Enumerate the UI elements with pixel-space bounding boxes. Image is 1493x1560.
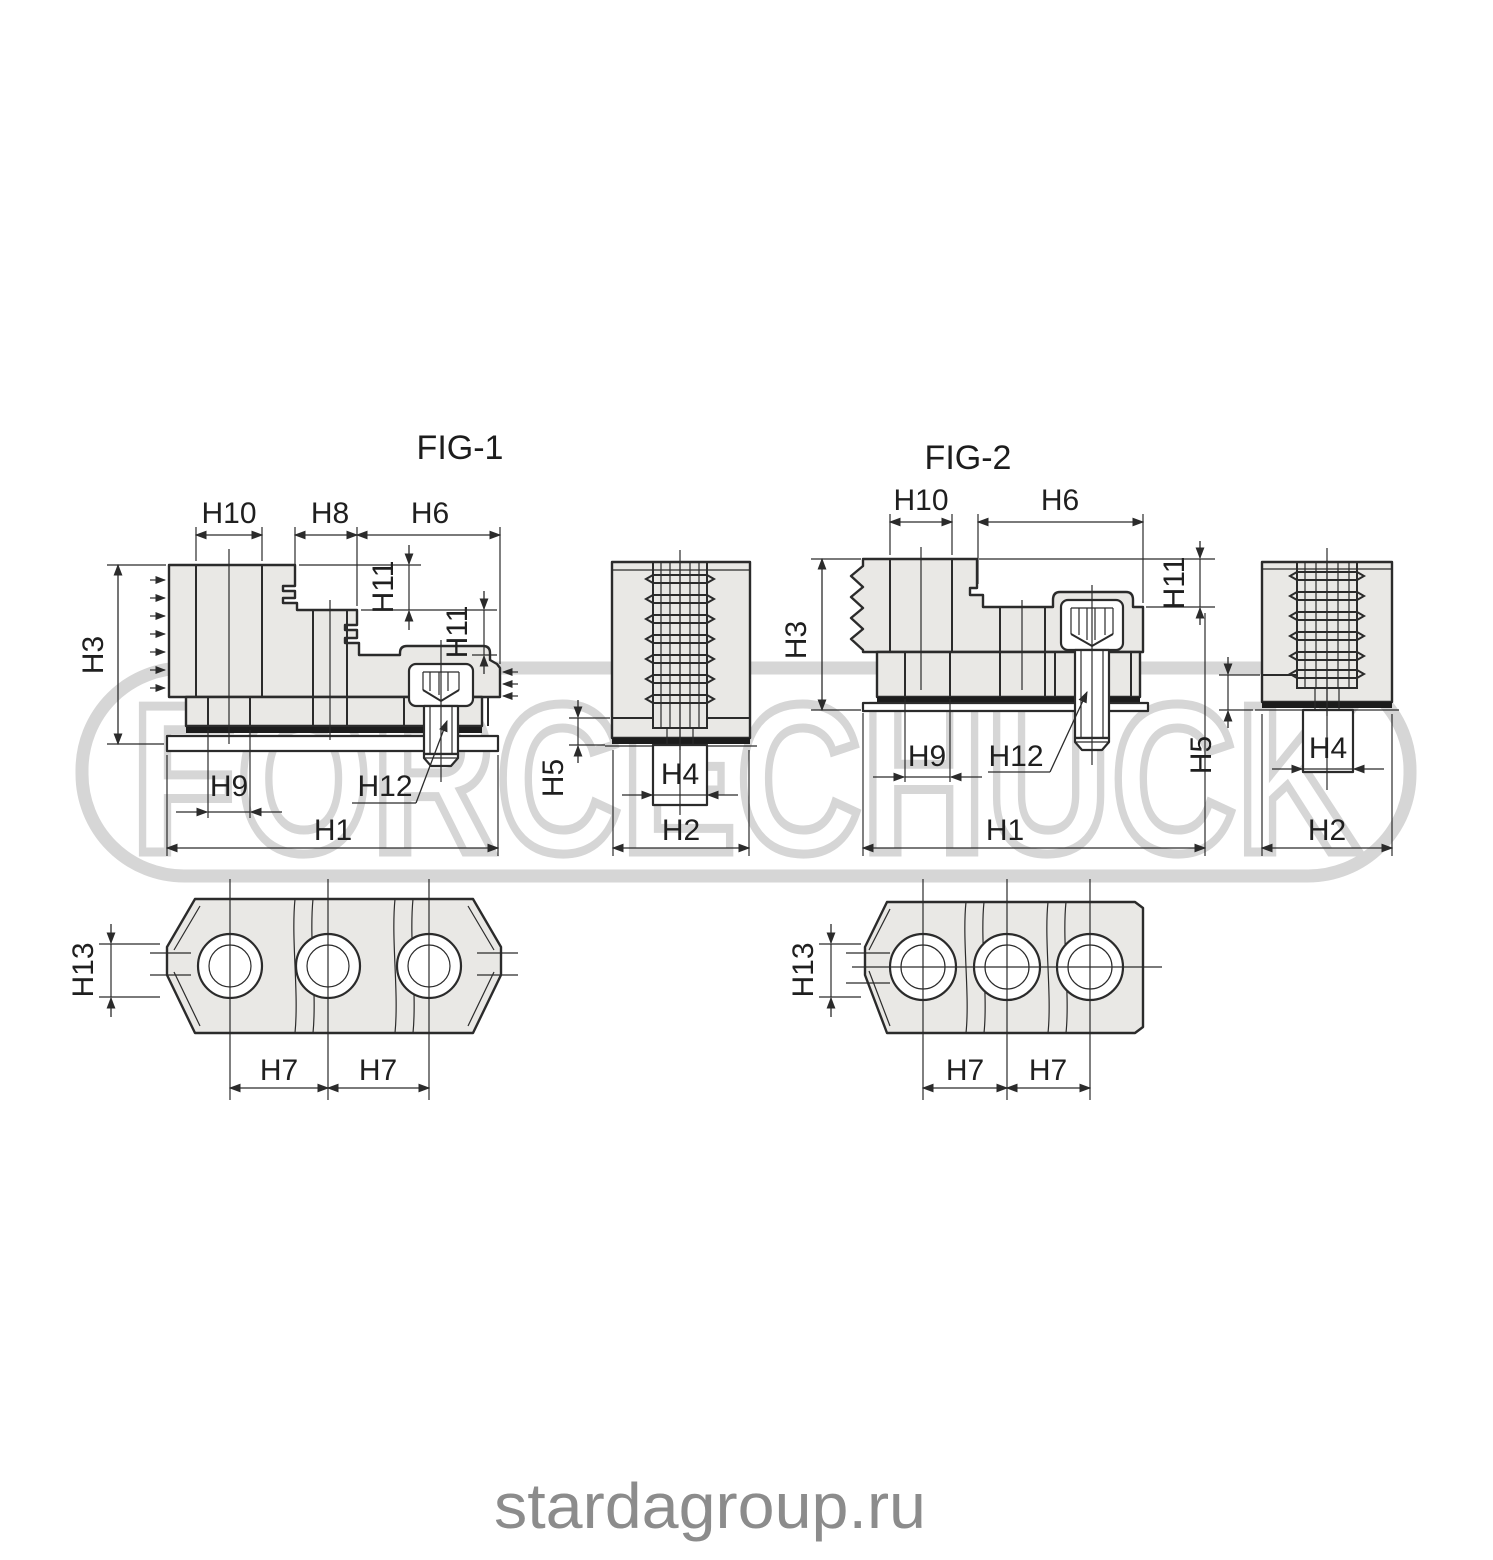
dim-label-h5-fig1: H5 bbox=[537, 759, 570, 797]
technical-drawing: FORCECHUCK FIG-1 bbox=[0, 0, 1493, 1560]
footer-site-text: stardagroup.ru bbox=[494, 1470, 926, 1542]
dim-label-h4-fig1: H4 bbox=[661, 758, 699, 791]
dim-label-h2-fig2: H2 bbox=[1308, 814, 1346, 847]
dim-label-h6-fig1: H6 bbox=[411, 497, 449, 530]
fig2-title: FIG-2 bbox=[925, 439, 1012, 477]
fig1-bottom-view: H13 H7 H7 bbox=[67, 879, 518, 1100]
dim-label-h10-fig2: H10 bbox=[893, 484, 948, 517]
dim-label-h8-fig1: H8 bbox=[311, 497, 349, 530]
dim-label-h7b-fig1: H7 bbox=[359, 1054, 397, 1087]
dim-label-h13-fig1: H13 bbox=[67, 942, 100, 997]
dim-label-h11a-fig1: H11 bbox=[367, 561, 400, 614]
dim-label-h7a-fig1: H7 bbox=[260, 1054, 298, 1087]
dim-label-h7a-fig2: H7 bbox=[946, 1054, 984, 1087]
dim-label-h1-fig1: H1 bbox=[314, 814, 352, 847]
drawing-page: FORCECHUCK FIG-1 bbox=[0, 0, 1493, 1560]
dim-label-h9-fig1: H9 bbox=[210, 770, 248, 803]
dim-label-h4-fig2: H4 bbox=[1309, 732, 1347, 765]
dim-label-h13-fig2: H13 bbox=[787, 942, 820, 997]
dim-label-h12-fig2: H12 bbox=[988, 740, 1043, 773]
dim-label-h2-fig1: H2 bbox=[662, 814, 700, 847]
dim-label-h10-fig1: H10 bbox=[201, 497, 256, 530]
dim-label-h5-fig2: H5 bbox=[1185, 736, 1218, 774]
dim-label-h3-fig1: H3 bbox=[77, 636, 110, 674]
fig2-bottom-view: H13 H7 H7 bbox=[787, 879, 1162, 1100]
dim-label-h11b-fig1: H11 bbox=[441, 606, 474, 659]
dim-label-h1-fig2: H1 bbox=[986, 814, 1024, 847]
fig1-title: FIG-1 bbox=[417, 429, 504, 467]
dim-label-h11-fig2: H11 bbox=[1158, 557, 1191, 610]
dim-label-h9-fig2: H9 bbox=[908, 740, 946, 773]
dim-label-h3-fig2: H3 bbox=[780, 621, 813, 659]
dim-label-h6-fig2: H6 bbox=[1041, 484, 1079, 517]
dim-label-h7b-fig2: H7 bbox=[1029, 1054, 1067, 1087]
dim-label-h12-fig1: H12 bbox=[357, 770, 412, 803]
